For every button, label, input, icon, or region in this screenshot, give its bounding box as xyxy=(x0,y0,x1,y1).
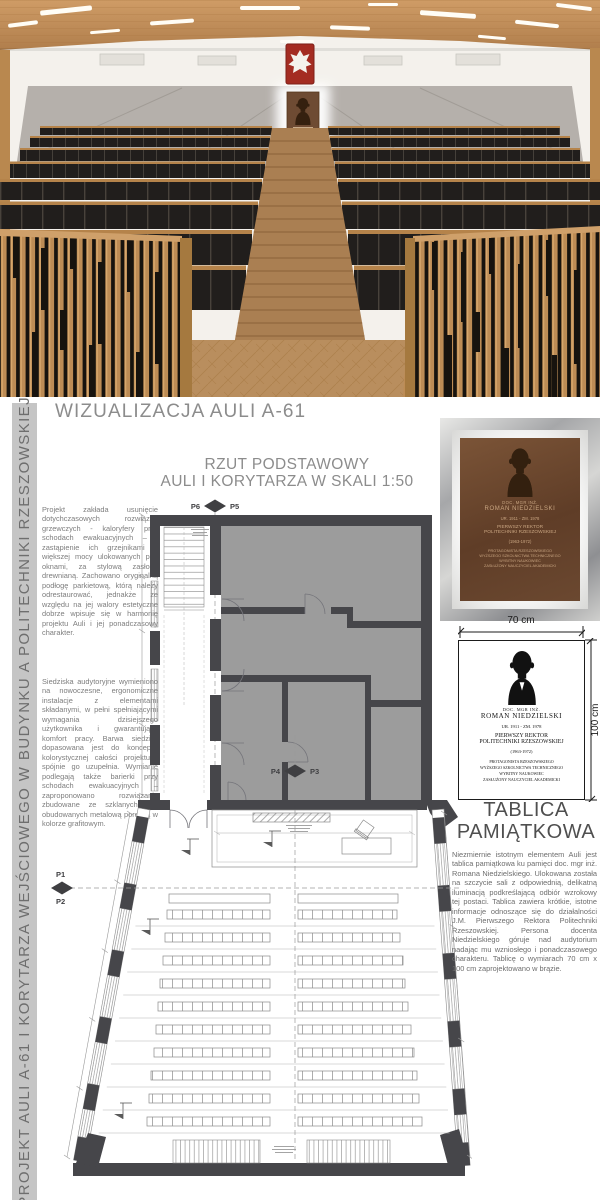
plaque-width-dimension: 70 cm xyxy=(458,614,585,638)
plan-title-line1: RZUT PODSTAWOWY xyxy=(158,456,416,473)
side-title-text: PROJEKT AULI A-61 I KORYTARZA WEJŚCIOWEG… xyxy=(16,396,33,1200)
drawing-desc3: WYBITNY NAUKOWIEC xyxy=(499,771,543,776)
staircase xyxy=(139,513,210,803)
drawing-desc4: ZASŁUŻONY NAUCZYCIEL AKADEMICKI xyxy=(483,777,560,782)
rear-hatch-left xyxy=(173,1140,260,1163)
plaque-role2: POLITECHNIKI RZESZOWSKIEJ xyxy=(484,530,556,535)
svg-text:P2: P2 xyxy=(56,897,65,906)
plan-title-line2: AULI I KORYTARZA W SKALI 1:50 xyxy=(158,473,416,490)
drawing-dates: UR. 1911 - ZM. 1978 xyxy=(502,724,542,729)
auditorium-plan: P1 P2 xyxy=(51,800,472,1176)
plan-title: RZUT PODSTAWOWY AULI I KORYTARZA W SKALI… xyxy=(158,456,416,491)
drawing-role2: POLITECHNIKI RZESZOWSKIEJ xyxy=(479,739,563,745)
plaque-dates: UR. 1911 - ZM. 1978 xyxy=(501,516,540,521)
eagle-emblem xyxy=(286,44,314,84)
auditorium-visualization-photo xyxy=(0,0,600,397)
visualization-title: WIZUALIZACJA AULI A-61 xyxy=(55,401,306,423)
svg-text:P4: P4 xyxy=(271,767,281,776)
svg-text:70 cm: 70 cm xyxy=(507,615,534,626)
svg-text:P5: P5 xyxy=(230,502,239,511)
lecturer-chair xyxy=(354,819,375,839)
slat-wall-right xyxy=(403,226,600,397)
front-table-left xyxy=(169,894,270,903)
svg-text:P6: P6 xyxy=(191,502,200,511)
front-table-right xyxy=(298,894,398,903)
plaque-name: ROMAN NIEDZIELSKI xyxy=(485,506,556,512)
slat-wall-left xyxy=(0,229,192,397)
rear-hatch-right xyxy=(307,1140,390,1163)
tablica-paragraph: Niezmiernie istotnym elementem Auli jest… xyxy=(452,850,597,973)
plaque-desc2: WYŻSZEGO SZKOLNICTWA TECHNICZNEGO xyxy=(479,554,560,558)
floor-plan: P6 P5 xyxy=(42,495,472,1195)
left-wall xyxy=(74,808,150,1162)
plaque-height-dimension: 100 cm xyxy=(585,638,600,802)
plaque-tenure: (1963-1972) xyxy=(509,539,532,544)
memorial-plaque-drawing: DOC. MGR INŻ. ROMAN NIEDZIELSKI UR. 1911… xyxy=(458,640,585,800)
plaque-drawing-portrait xyxy=(498,645,546,705)
drawing-name: ROMAN NIEDZIELSKI xyxy=(481,712,562,720)
plaque-desc1: PROTAGONISTA RZESZOWSKIEGO xyxy=(488,549,552,553)
lecturer-table xyxy=(342,838,391,854)
presentation-board: PROJEKT AULI A-61 I KORYTARZA WEJŚCIOWEG… xyxy=(0,0,600,1200)
drawing-desc2: WYŻSZEGO SZKOLNICTWA TECHNICZNEGO xyxy=(480,765,563,770)
section-marker-p1-p2: P1 P2 xyxy=(51,870,73,906)
memorial-plaque-photo: DOC. MGR INŻ. ROMAN NIEDZIELSKI UR. 1911… xyxy=(440,418,600,621)
plaque-desc3: WYBITNY NAUKOWIEC xyxy=(499,559,541,563)
svg-text:P3: P3 xyxy=(310,767,319,776)
plaque-plate: DOC. MGR INŻ. ROMAN NIEDZIELSKI UR. 1911… xyxy=(460,438,580,601)
plaque-portrait xyxy=(499,443,541,497)
plaque-glow: DOC. MGR INŻ. ROMAN NIEDZIELSKI UR. 1911… xyxy=(452,430,588,609)
svg-text:100 cm: 100 cm xyxy=(590,704,600,737)
drawing-desc1: PROTAGONISTA RZESZOWSKIEGO xyxy=(489,759,553,764)
svg-text:P1: P1 xyxy=(56,870,65,879)
corridor: P4 P3 xyxy=(210,515,432,805)
stage-podium xyxy=(212,810,417,867)
parquet-floor xyxy=(190,340,410,397)
plaque-pretitle: DOC. MGR INŻ. xyxy=(502,500,538,505)
drawing-tenure: (1963-1972) xyxy=(511,749,533,754)
tablica-heading: TABLICA PAMIĄTKOWA xyxy=(452,800,600,843)
plaque-desc4: ZASŁUŻONY NAUCZYCIEL AKADEMICKI xyxy=(484,564,556,568)
side-title-bar: PROJEKT AULI A-61 I KORYTARZA WEJŚCIOWEG… xyxy=(12,403,37,1200)
